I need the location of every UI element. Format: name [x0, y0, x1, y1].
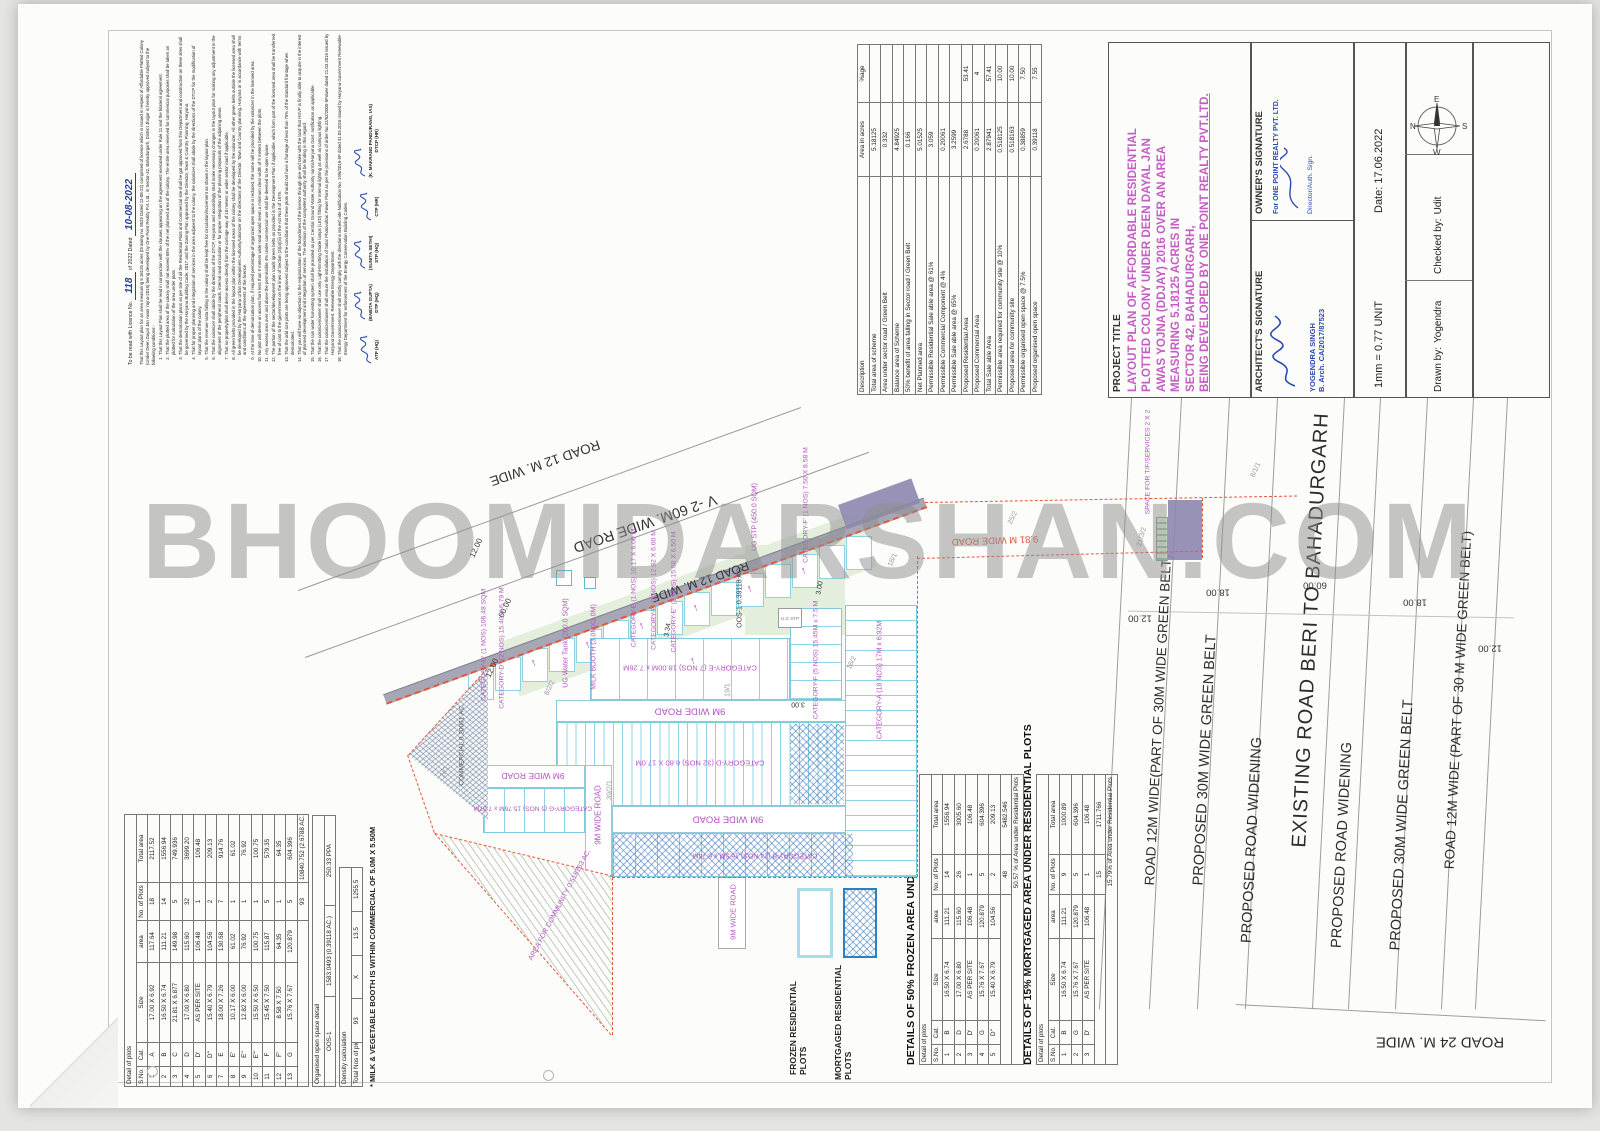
- fold-corner: [30, 1016, 118, 1108]
- khasra-number: 8/1/1: [1250, 461, 1263, 478]
- category-label: CATEGORY-A (18 NOS) 17M x 6.92M: [877, 621, 884, 740]
- green-belt-strip: [1156, 517, 1168, 561]
- table-row: 12 F' 8.58 X 7.50 64.35 1 64.35: [274, 814, 286, 1086]
- road-label-981: 9.81 M WIDE ROAD: [952, 533, 1039, 547]
- legend-mortgaged-swatch: [843, 888, 877, 958]
- category-label: CATEGORY-E' (1 NOS) 12.82 X 6.00 M: [651, 530, 658, 650]
- cell-nos: 5: [171, 883, 183, 921]
- total-area: 10840.752 (2.6788 AC.): [297, 814, 309, 882]
- cell-sno: 9: [240, 1067, 252, 1087]
- road-label-9m: 9M WIDE ROAD: [594, 785, 603, 845]
- cell-area: 115.60: [182, 921, 194, 963]
- boundary-line: [925, 496, 1297, 503]
- category-label: CATEGORY-B (14 NOS) 16.5M x 6.74M: [693, 852, 818, 859]
- cell-area: 76.92: [240, 921, 252, 963]
- category-label: CATEGORY-F (5 NOS) 15.45M x 7.5 M: [813, 601, 820, 720]
- table-row: 1B 16.50 X 6.74111.21 141556.94: [943, 774, 955, 1064]
- commercial-label: COMMERCIAL 0.20061 AC.: [459, 704, 466, 785]
- cell-nos: 14: [159, 883, 171, 921]
- mortgaged-total-area: 1711.766: [1094, 774, 1106, 854]
- cell-nos: 2: [205, 883, 217, 921]
- cell-total: 2117.52: [148, 814, 160, 882]
- frozen-total-area: 5482.546: [1000, 774, 1012, 854]
- cell-size: 17.00 X 6.80: [182, 963, 194, 1043]
- density-result: 1255.5: [351, 868, 363, 912]
- category-label: CATEGORY-G (5 NOS) 15.76M x 7.67M: [474, 805, 592, 812]
- cell-area: 149.98: [171, 921, 183, 963]
- boundary-line: [1202, 498, 1203, 558]
- density-factor: 13.5: [351, 911, 363, 955]
- cell-nos: 5: [286, 883, 298, 921]
- col-sno: S.No.: [136, 1067, 148, 1087]
- cell-cat: B: [159, 1043, 171, 1067]
- table-row: 6 D'' 15.40 X 6.79 104.56 2 209.13: [205, 814, 217, 1086]
- cell-size: 17.00 X 6.92: [148, 963, 160, 1043]
- table-row: 2D 17.00 X 6.80115.60 263005.60: [954, 774, 966, 1064]
- total-nos: 93: [297, 883, 309, 921]
- category-label: CATEGORY-F' (1 NOS) 7.50 X 8.58 M: [803, 447, 810, 563]
- cell-cat: C: [171, 1043, 183, 1067]
- density-title: Density calculation: [340, 868, 352, 1087]
- dimension-label: 12.00: [1128, 613, 1152, 624]
- ug-water-tank-box: [556, 570, 572, 586]
- khasra-number: 21/3/2: [1136, 527, 1148, 548]
- cell-sno: 6: [205, 1067, 217, 1087]
- cell-area: 64.35: [274, 921, 286, 963]
- col-area: area: [136, 921, 148, 963]
- road-label-9m: 9M WIDE ROAD: [729, 884, 738, 940]
- category-label: CATEGORY-E'' (1 NOS) 15.50 X 6.50 M: [671, 531, 678, 652]
- table-row: 2G 15.76 X 7.67120.879 5604.396: [1071, 774, 1083, 1064]
- cell-size: 16.50 X 6.74: [159, 963, 171, 1043]
- cell-cat: E: [217, 1043, 229, 1067]
- cell-cat: E': [228, 1043, 240, 1067]
- cell-size: 12.82 X 6.00: [240, 963, 252, 1043]
- col-total: Total area: [136, 814, 148, 882]
- khasra-number: 19/1: [725, 683, 732, 697]
- utility-label: UG STP (450.0 SQM): [752, 483, 759, 551]
- cell-total: 1556.94: [159, 814, 171, 882]
- cell-area: 61.02: [228, 921, 240, 963]
- category-label: CATEGORY-D (32 NOS) 6.80 X 17.0M: [635, 759, 764, 768]
- table-row: 2 B 16.50 X 6.74 111.21 14 1556.94: [159, 814, 171, 1086]
- boundary-line: [917, 556, 918, 877]
- table-row: 4G 15.76 X 7.67120.879 5604.396: [977, 774, 989, 1064]
- cell-nos: 1: [251, 883, 263, 921]
- cell-total: 106.48: [194, 814, 206, 882]
- mortgaged-table: Detail of plots S.No. Cat. Size area No.…: [1036, 774, 1118, 1065]
- dimension-label: 3.00: [791, 701, 805, 708]
- cell-total: 209.13: [205, 814, 217, 882]
- category-label: CATEGORY-D'' (2 NOS) 15.40 X 6.79 M: [499, 587, 506, 708]
- oos-label: OOS-1 0.39118 AC.: [737, 566, 744, 628]
- col-size: Size: [136, 963, 148, 1043]
- legend-mortgaged-label: MORTGAGED RESIDENTIAL PLOTS: [833, 960, 863, 1080]
- col-cat: Cat.: [136, 1043, 148, 1067]
- road-label-9m: 9M WIDE ROAD: [655, 706, 726, 717]
- cell-sno: 4: [182, 1067, 194, 1087]
- cell-area: 117.64: [148, 921, 160, 963]
- cell-cat: E''': [251, 1043, 263, 1067]
- cell-area: 100.75: [251, 921, 263, 963]
- cell-sno: 13: [286, 1067, 298, 1087]
- table-row: 3D' AS PER SITE106.48 1106.48: [966, 774, 978, 1064]
- cell-sno: 8: [228, 1067, 240, 1087]
- density-plots: 93: [351, 999, 363, 1043]
- strip-label-road24: ROAD 24 M. WIDE: [1376, 1034, 1504, 1051]
- ug-stp-box: U.G STP: [778, 608, 802, 628]
- mortgaged-hatch-overlay: [790, 724, 844, 804]
- cell-total: 76.92: [240, 814, 252, 882]
- cell-total: 749.936: [171, 814, 183, 882]
- cell-size: 15.50 X 6.50: [251, 963, 263, 1043]
- table-row: 9 E'' 12.82 X 6.00 76.92 1 76.92: [240, 814, 252, 1086]
- cell-area: 130.68: [217, 921, 229, 963]
- frozen-subtitle: Detail of plots: [920, 774, 932, 1064]
- cell-total: 914.76: [217, 814, 229, 882]
- table-row: Total Nos of plots 93 X 13.5 1255.5: [351, 868, 363, 1087]
- plot-cell: [711, 582, 737, 616]
- frozen-table-block: DETAILS OF 50% FROZEN AREA UNDER RESIDEN…: [905, 715, 1005, 1065]
- table-header-row: S.No. Cat. Size area No. of Plots Total …: [136, 814, 148, 1086]
- milk-booth-box: [584, 577, 596, 589]
- cell-sno: 11: [263, 1067, 275, 1087]
- plot-cell: [819, 545, 845, 579]
- frozen-total-nos: 48: [1000, 855, 1012, 895]
- punch-hole: [543, 1070, 554, 1081]
- ug-stp-small-label: U.G STP: [781, 616, 799, 621]
- cell-sno: 10: [251, 1067, 263, 1087]
- cell-nos: 18: [148, 883, 160, 921]
- oos-table: Organised open space detail OOS-1 1583.0…: [312, 815, 336, 1087]
- cell-nos: 32: [182, 883, 194, 921]
- cell-size: 10.17 X 6.00: [228, 963, 240, 1043]
- mortgaged-total-nos: 15: [1094, 855, 1106, 895]
- cell-size: 15.40 X 6.79: [205, 963, 217, 1043]
- cell-total: 3699.20: [182, 814, 194, 882]
- table-row: 8 E' 10.17 X 6.00 61.02 1 61.02: [228, 814, 240, 1086]
- table-row: OOS-1 1583.0493 (0.39118 AC.) 250.33 PPA: [324, 816, 336, 1087]
- cell-cat: F': [274, 1043, 286, 1067]
- cell-sno: 3: [171, 1067, 183, 1087]
- cell-cat: A: [148, 1043, 160, 1067]
- cell-total: 604.396: [286, 814, 298, 882]
- cell-area: 120.879: [286, 921, 298, 963]
- cell-area: 115.87: [263, 921, 275, 963]
- legend-frozen-label: FROZEN RESIDENTIAL PLOTS: [788, 960, 814, 1075]
- scanned-layout-plan: To be read with Licence No. 118 of 2022 …: [0, 0, 1600, 1131]
- milk-booth-note: * MILK & VEGETABLE BOOTH IS WITHIN COMME…: [368, 702, 377, 1087]
- boundary-line: [612, 877, 917, 878]
- cell-area: 106.48: [194, 921, 206, 963]
- table-row: 3 C 21.81 X 6.877 149.98 5 749.936: [171, 814, 183, 1086]
- oos-ppa: 250.33 PPA: [324, 816, 336, 906]
- table-row: 3D' AS PER SITE106.48 1106.48: [1083, 774, 1095, 1064]
- table-header-row: S.No. Cat. Size area No. of Plots Total …: [931, 774, 943, 1064]
- road-label-9m: 9M WIDE ROAD: [501, 771, 564, 781]
- mortgaged-table-title: DETAILS OF 15% MORTGAGED AREA UNDER RESI…: [1022, 715, 1034, 1065]
- density-table: Density calculation Total Nos of plots 9…: [339, 867, 363, 1087]
- oos-id: OOS-1: [324, 996, 336, 1086]
- cell-total: 61.02: [228, 814, 240, 882]
- plots-table-block: Detail of plots S.No. Cat. Size area No.…: [124, 702, 369, 1087]
- cell-sno: 12: [274, 1067, 286, 1087]
- dimension-label: 60.00: [1303, 580, 1327, 591]
- dimension-label: 12.00: [468, 537, 485, 559]
- cell-cat: G: [286, 1043, 298, 1067]
- table-row: 5 D' AS PER SITE 106.48 1 106.48: [194, 814, 206, 1086]
- dimension-label: 18.00: [1206, 587, 1230, 598]
- mortgaged-subtitle: Detail of plots: [1037, 774, 1049, 1064]
- cell-total: 100.75: [251, 814, 263, 882]
- cell-sno: 5: [194, 1067, 206, 1087]
- col-nos: No. of Plots: [136, 883, 148, 921]
- cell-area: 104.56: [205, 921, 217, 963]
- table-row: 5D'' 15.40 X 6.79104.56 2209.13: [989, 774, 1001, 1064]
- category-label: CATEGORY-E (1 NOS) 10.17 X 6.00 M: [631, 529, 638, 648]
- plot-cell: [765, 564, 791, 598]
- cell-sno: 2: [159, 1067, 171, 1087]
- cell-area: 111.21: [159, 921, 171, 963]
- khasra-number: 25/2: [1007, 510, 1019, 525]
- plots-table: Detail of plots S.No. Cat. Size area No.…: [124, 814, 309, 1087]
- road-label-v2-60m: V -2 60M. WIDE ROAD: [571, 491, 719, 555]
- mortgaged-pct: 15.79% of Area under Residential Plots: [1106, 774, 1118, 1064]
- table-row: 1 A 17.00 X 6.92 117.64 18 2117.52: [148, 814, 160, 1086]
- density-label: Total Nos of plots: [351, 1043, 363, 1087]
- oos-title: Organised open space detail: [313, 816, 325, 1087]
- cell-size: 15.76 X 7.67: [286, 963, 298, 1043]
- table-row: 1B 16.50 X 6.74111.21 91000.89: [1060, 774, 1072, 1064]
- khasra-number: 39/2/1: [607, 780, 614, 799]
- cell-size: 15.45 X 7.50: [263, 963, 275, 1043]
- cell-nos: 1: [274, 883, 286, 921]
- cell-cat: D': [194, 1043, 206, 1067]
- khasra-number: 18/1: [887, 552, 899, 567]
- frozen-table: Detail of plots S.No. Cat. Size area No.…: [919, 774, 1024, 1065]
- dimension-label: 12.00: [1478, 643, 1502, 654]
- cell-nos: 7: [217, 883, 229, 921]
- cell-size: 21.81 X 6.877: [171, 963, 183, 1043]
- punch-hole: [147, 1066, 158, 1077]
- table-row: 11 F 15.45 X 7.50 115.87 5 579.35: [263, 814, 275, 1086]
- cell-size: 8.58 X 7.50: [274, 963, 286, 1043]
- density-x: X: [351, 955, 363, 999]
- table-header-row: S.No. Cat. Size area No. of Plots Total …: [1048, 774, 1060, 1064]
- legend-frozen-swatch: [797, 888, 833, 958]
- cell-nos: 1: [240, 883, 252, 921]
- boundary-line: [612, 877, 613, 1035]
- table-row: 13 G 15.76 X 7.67 120.879 5 604.396: [286, 814, 298, 1086]
- table-total-row: 93 10840.752 (2.6788 AC.): [297, 814, 309, 1086]
- cell-cat: D: [182, 1043, 194, 1067]
- road-label-12m-top: ROAD 12 M. WIDE: [488, 437, 602, 489]
- cell-nos: 5: [263, 883, 275, 921]
- oos-area: 1583.0493 (0.39118 AC.): [324, 906, 336, 996]
- cell-nos: 1: [228, 883, 240, 921]
- dimension-label: 18.00: [1403, 597, 1427, 608]
- cell-cat: E'': [240, 1043, 252, 1067]
- utility-label: SPACE FOR T/F/SERVICES 2 X 2: [1145, 410, 1152, 515]
- table-row: 7 E 18.00 X 7.26 130.68 7 914.76: [217, 814, 229, 1086]
- table-row: 10 E''' 15.50 X 6.50 100.75 1 100.75: [251, 814, 263, 1086]
- utility-label: UG Water Tank (200.0 SQM): [563, 598, 570, 687]
- table-row: 4 D 17.00 X 6.80 115.60 32 3699.20: [182, 814, 194, 1086]
- cell-nos: 1: [194, 883, 206, 921]
- table-total-row: 15 1711.766: [1094, 774, 1106, 1064]
- mortgaged-table-block: DETAILS OF 15% MORTGAGED AREA UNDER RESI…: [1022, 715, 1127, 1065]
- cell-sno: 7: [217, 1067, 229, 1087]
- table-total-row: 48 5482.546: [1000, 774, 1012, 1064]
- cell-cat: D'': [205, 1043, 217, 1067]
- plots-table-title: Detail of plots: [125, 814, 137, 1086]
- cell-total: 64.35: [274, 814, 286, 882]
- cell-total: 579.35: [263, 814, 275, 882]
- plot-cell: [846, 536, 872, 570]
- cell-size: 18.00 X 7.26: [217, 963, 229, 1043]
- cell-cat: F: [263, 1043, 275, 1067]
- cell-size: AS PER SITE: [194, 963, 206, 1043]
- road-label-9m: 9M WIDE ROAD: [693, 814, 764, 825]
